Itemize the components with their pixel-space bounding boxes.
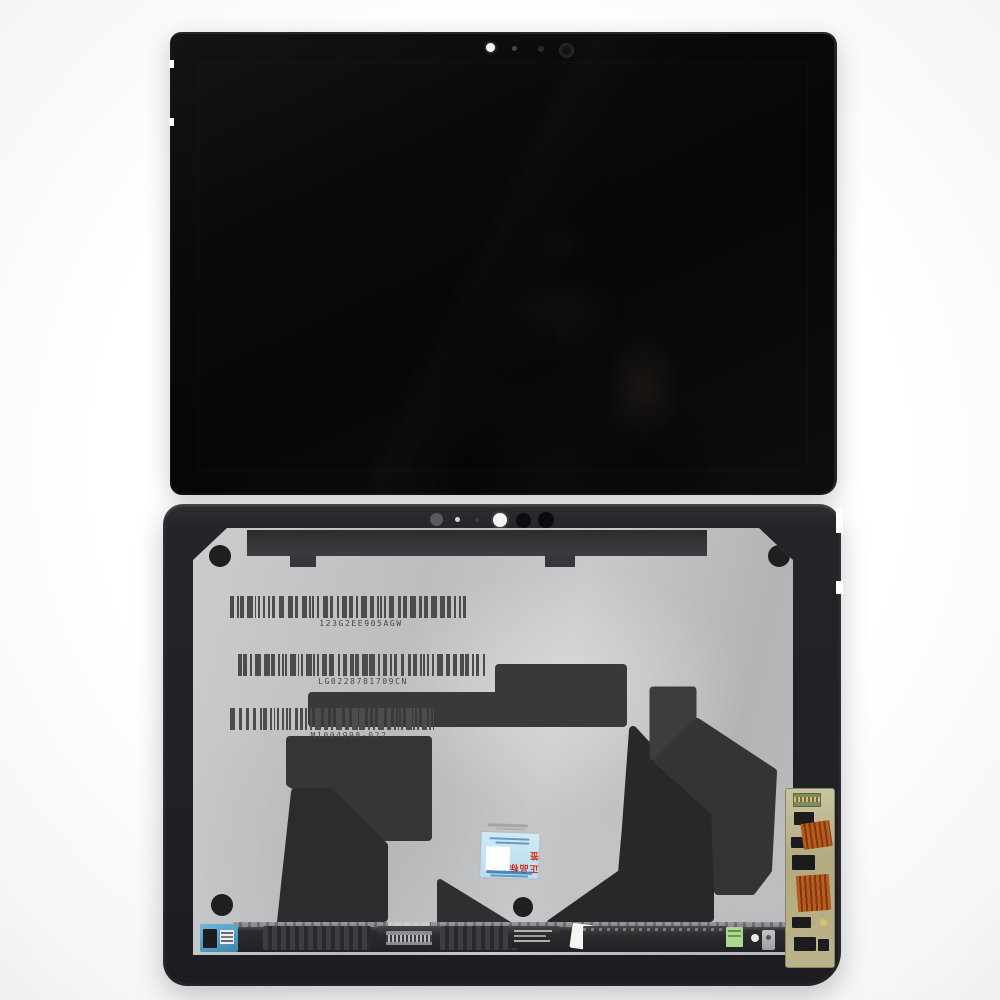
barcode-bars [230,708,468,730]
rear-sensor-hole [430,513,443,526]
serial-barcode-1: 123G2EE905AGW [230,596,492,628]
long-flex-cable [583,926,727,951]
frame-notch [836,508,843,533]
frame-notch [169,60,174,68]
printed-flex-cable [508,926,560,948]
authenticity-sticker: 正品标签 [480,823,542,883]
barcode-text: 123G2EE905AGW [230,619,492,628]
qc-green-sticker [726,927,743,947]
flex-cable-orange [800,820,832,850]
barcode-text: LG0228781709CN [238,677,488,686]
lcd-flex-connector [263,926,371,950]
screw-hole [751,934,759,942]
front-camera-lens [559,43,574,58]
barcode-bars [238,654,488,676]
adhesive-dot [209,545,231,567]
rear-shield-panel: 123G2EE905AGW LG0228781709CN M1004998-02… [193,528,793,955]
flex-cable-orange [796,874,831,912]
driver-board-pcb [785,788,835,968]
adhesive-dot [513,897,533,917]
serial-barcode-2: LG0228781709CN [238,654,488,686]
metal-bracket [762,930,775,950]
board-to-board-connector [386,931,432,945]
front-ambient-sensor-dot [512,46,517,51]
rear-camera-hole [493,513,507,527]
rear-camera-lens [538,512,554,528]
touch-controller-pcb [200,924,238,952]
inner-bezel-outline [198,62,808,471]
adhesive-pads-layer [193,528,793,955]
rear-mic-hole [455,517,460,522]
frame-notch [169,118,174,126]
rear-camera-lens [516,513,531,528]
back-panel-assembly: 123G2EE905AGW LG0228781709CN M1004998-02… [163,504,841,986]
board-connector-housing [377,926,440,950]
product-photo-canvas: { "back_panel": { "barcodes": [ { "value… [0,0,1000,1000]
frame-notch [836,581,843,594]
front-mic-hole [538,46,544,52]
sticker-body: 正品标签 [480,832,540,879]
adhesive-shape [440,882,510,925]
adhesive-dot [211,894,233,916]
pcb-top-connector [793,793,821,807]
barcode-text: M1004998-022 [230,731,468,740]
rear-mic-hole [475,518,479,522]
adhesive-dot [768,545,790,567]
front-glass-assembly [170,32,837,495]
sticker-faint-print [496,827,526,830]
pcb-label [220,930,234,944]
serial-barcode-3: M1004998-022 [230,708,468,740]
barcode-bars [230,596,492,618]
front-camera-hole [486,43,495,52]
solder-pad [820,919,827,926]
connector-label [388,922,430,926]
lcd-flex-connector [440,926,517,950]
